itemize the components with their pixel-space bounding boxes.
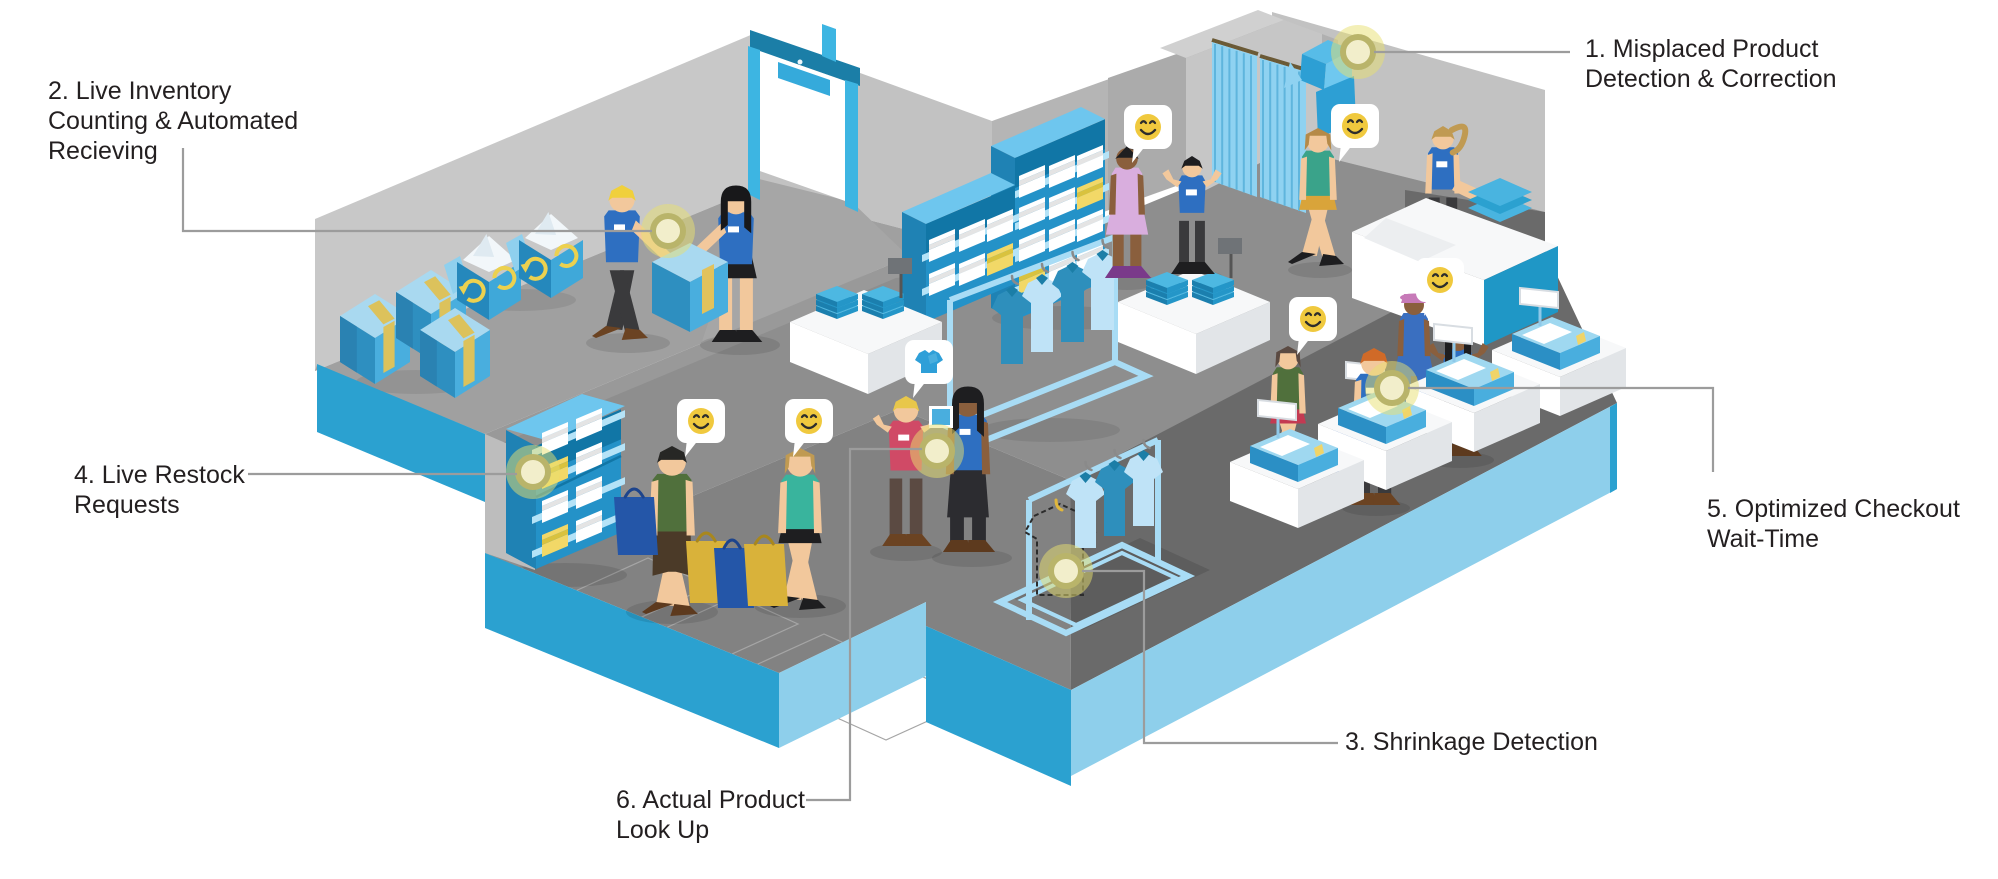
svg-text:Requests: Requests [74, 491, 180, 519]
svg-text:3. Shrinkage Detection: 3. Shrinkage Detection [1345, 728, 1598, 756]
svg-text:6. Actual Product: 6. Actual Product [616, 786, 805, 814]
svg-text:Look Up: Look Up [616, 816, 709, 844]
svg-text:1. Misplaced Product: 1. Misplaced Product [1585, 35, 1819, 63]
svg-text:Recieving: Recieving [48, 137, 158, 165]
svg-text:Wait-Time: Wait-Time [1707, 525, 1819, 553]
svg-text:Detection & Correction: Detection & Correction [1585, 65, 1837, 93]
svg-text:Counting & Automated: Counting & Automated [48, 107, 298, 135]
svg-text:4. Live Restock: 4. Live Restock [74, 461, 245, 489]
svg-text:2. Live Inventory: 2. Live Inventory [48, 77, 232, 105]
svg-text:5. Optimized Checkout: 5. Optimized Checkout [1707, 495, 1960, 523]
